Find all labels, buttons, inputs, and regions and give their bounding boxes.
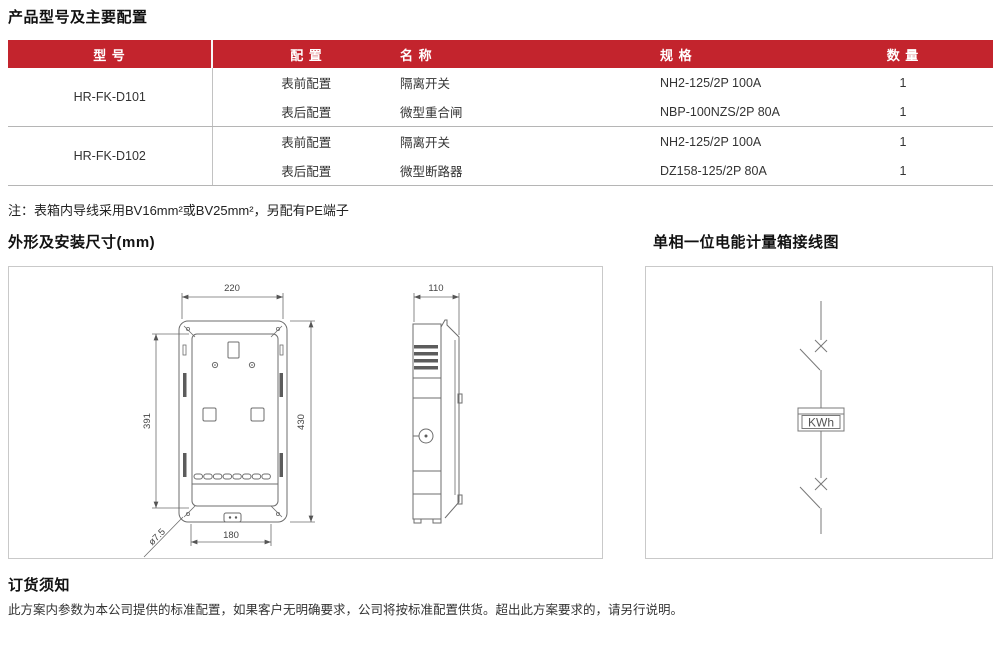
model-cell: HR-FK-D102 [8,127,212,186]
table-header-row: 型 号 配 置 名 称 规 格 数 量 [8,40,993,68]
qty-cell: 1 [813,97,993,127]
header-config: 配 置 [212,40,400,68]
header-spec: 规 格 [660,40,813,68]
order-instructions: 此方案内参数为本公司提供的标准配置，如果客户无明确要求，公司将按标准配置供货。超… [8,602,988,619]
side-view-drawing [413,320,462,523]
section-title-wiring: 单相一位电能计量箱接线图 [653,234,839,252]
svg-text:180: 180 [223,530,239,541]
qty-cell: 1 [813,127,993,157]
header-name: 名 称 [400,40,660,68]
svg-text:430: 430 [296,414,307,430]
dimension-drawing: 220 391 430 180 ø7.5 [9,267,602,558]
breaker-symbol-incoming [800,340,827,408]
dimension-391: 391 [142,334,189,508]
dimension-110: 110 [414,283,459,335]
svg-text:220: 220 [224,283,240,294]
name-cell: 隔离开关 [400,127,660,157]
wiring-diagram-panel: KWh [645,266,993,559]
qty-cell: 1 [813,156,993,186]
louver-slots [194,474,270,479]
section-title-dimensions: 外形及安装尺寸(mm) [8,234,155,252]
table-row: HR-FK-D102 表前配置 隔离开关 NH2-125/2P 100A 1 [8,127,993,157]
config-cell: 表后配置 [212,156,400,186]
model-cell: HR-FK-D101 [8,68,212,127]
spec-cell: NH2-125/2P 100A [660,127,813,157]
section-title-order: 订货须知 [8,577,70,595]
kwh-meter-label: KWh [808,416,834,430]
spec-cell: DZ158-125/2P 80A [660,156,813,186]
name-cell: 微型断路器 [400,156,660,186]
dimension-drawing-panel: 220 391 430 180 ø7.5 [8,266,603,559]
dimension-180: 180 [191,524,271,546]
svg-text:ø7.5: ø7.5 [147,527,168,548]
dimension-hole: ø7.5 [144,517,183,557]
qty-cell: 1 [813,68,993,97]
name-cell: 微型重合闸 [400,97,660,127]
header-model: 型 号 [8,40,212,68]
config-cell: 表前配置 [212,68,400,97]
config-cell: 表后配置 [212,97,400,127]
spec-cell: NH2-125/2P 100A [660,68,813,97]
svg-text:391: 391 [142,413,153,429]
dimension-430: 430 [290,321,315,522]
wiring-diagram: KWh [646,267,992,558]
datasheet-page: 产品型号及主要配置 型 号 配 置 名 称 规 格 数 量 HR-FK-D101… [0,0,1000,645]
wiring-note: 注：表箱内导线采用BV16mm²或BV25mm²，另配有PE端子 [8,200,349,219]
section-title-products: 产品型号及主要配置 [8,9,148,27]
table-row: HR-FK-D101 表前配置 隔离开关 NH2-125/2P 100A 1 [8,68,993,97]
name-cell: 隔离开关 [400,68,660,97]
svg-text:110: 110 [428,283,443,294]
breaker-symbol-outgoing [800,478,827,534]
config-table: 型 号 配 置 名 称 规 格 数 量 HR-FK-D101 表前配置 隔离开关… [8,40,993,186]
spec-cell: NBP-100NZS/2P 80A [660,97,813,127]
dimension-220: 220 [182,283,283,319]
header-qty: 数 量 [813,40,993,68]
config-cell: 表前配置 [212,127,400,157]
front-view-drawing [179,321,287,522]
